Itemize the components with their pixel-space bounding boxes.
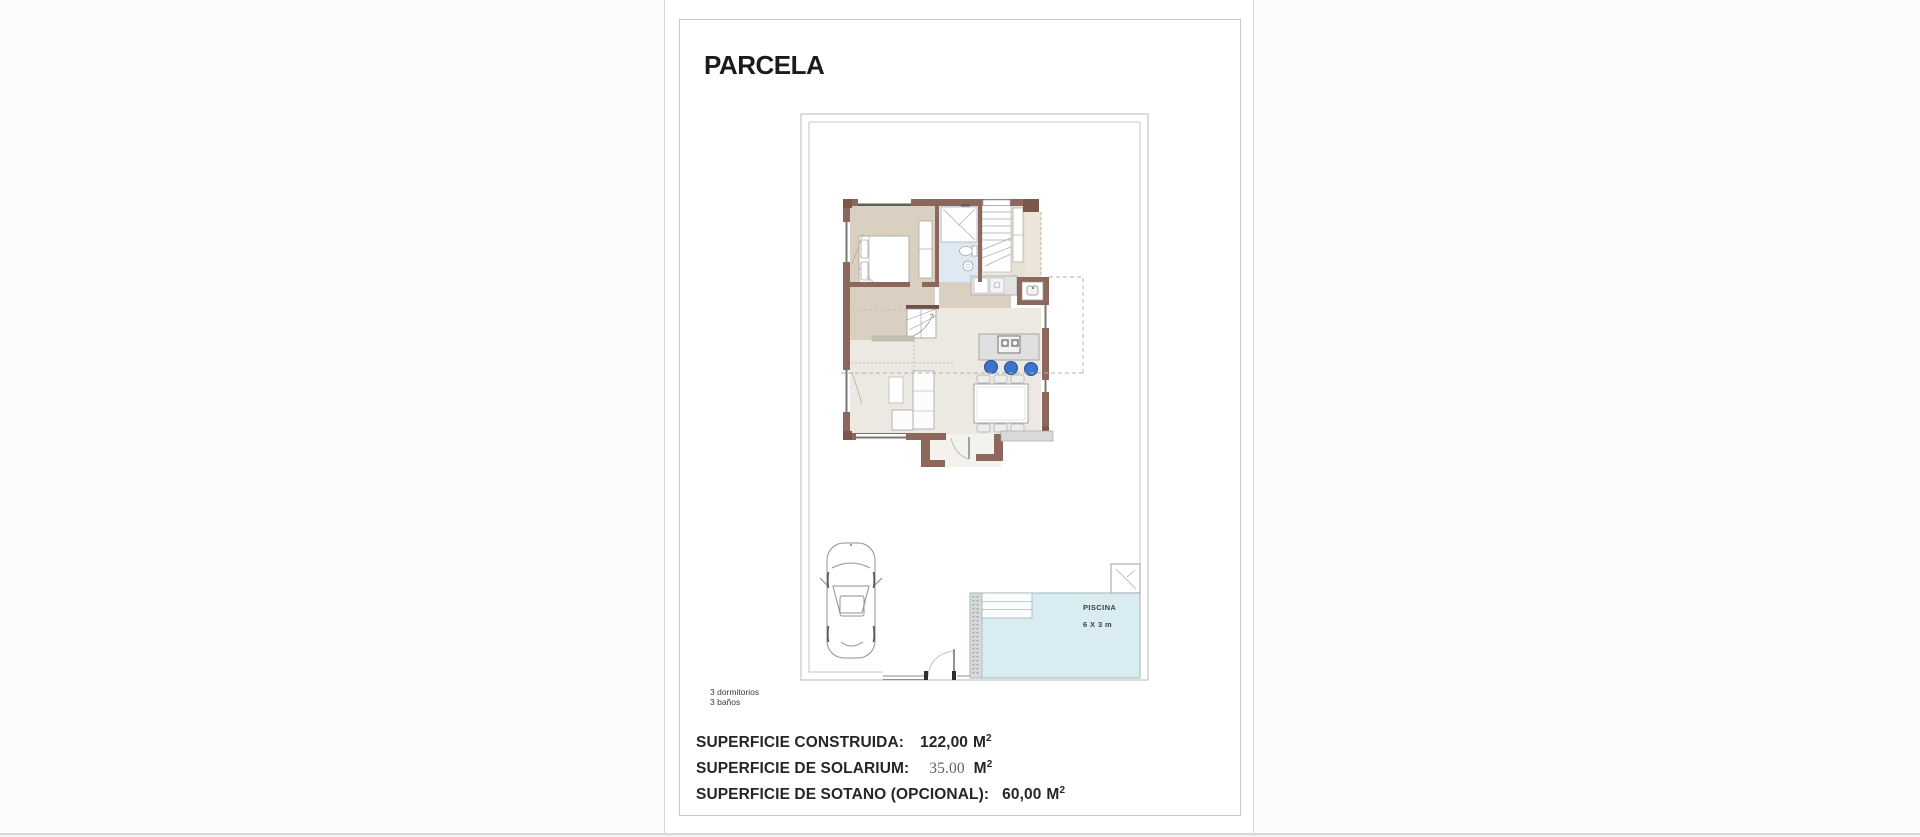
kitchen-counter xyxy=(971,276,1017,295)
staircase-upper xyxy=(982,205,1011,272)
terrace-slab-edge xyxy=(1001,431,1053,441)
pool-steps xyxy=(982,593,1032,618)
bed xyxy=(859,236,909,284)
summary-label: SUPERFICIE DE SOLARIUM: xyxy=(696,760,909,778)
summary-value: 60,00 xyxy=(1002,786,1041,804)
bathroom-sink xyxy=(963,261,973,271)
surface-summary: SUPERFICIE CONSTRUIDA: 122,00 M2 SUPERFI… xyxy=(696,733,1065,811)
summary-label: SUPERFICIE CONSTRUIDA: xyxy=(696,734,904,752)
gate-post xyxy=(952,671,956,680)
summary-label: SUPERFICIE DE SOTANO (OPCIONAL): xyxy=(696,786,989,804)
summary-row-solarium: SUPERFICIE DE SOLARIUM: 35.00 M2 xyxy=(696,759,1065,778)
toilet xyxy=(960,246,978,256)
coffee-table xyxy=(889,377,903,403)
summary-value: 122,00 xyxy=(920,734,968,752)
summary-row-sotano: SUPERFICIE DE SOTANO (OPCIONAL): 60,00 M… xyxy=(696,785,1065,804)
outdoor-shower xyxy=(1111,564,1140,593)
wardrobe xyxy=(919,221,932,278)
plan-notes: 3 dormitorios 3 baños xyxy=(710,687,759,707)
kitchen-island xyxy=(979,334,1039,360)
pool-steps-strip xyxy=(970,593,982,678)
staircase-winder xyxy=(906,305,939,338)
site-plan-drawing: PISCINA 6 X 3 m xyxy=(665,0,1255,837)
summary-value: 35.00 xyxy=(929,760,964,778)
pool-label: PISCINA xyxy=(1083,603,1116,612)
house-floor-plan xyxy=(841,199,1083,467)
summary-unit: M2 xyxy=(1046,785,1065,804)
pool: PISCINA 6 X 3 m xyxy=(970,593,1140,678)
plan-document-page: PARCELA xyxy=(664,0,1254,834)
shower xyxy=(941,207,977,242)
gate-post xyxy=(924,671,928,680)
pool-size-label: 6 X 3 m xyxy=(1083,620,1112,629)
note-bedrooms: 3 dormitorios xyxy=(710,687,759,697)
kitchen-corner-sink xyxy=(1017,277,1049,305)
note-bathrooms: 3 baños xyxy=(710,697,759,707)
side-terrace xyxy=(1025,212,1041,277)
hall-closet xyxy=(1013,208,1023,262)
summary-unit: M2 xyxy=(974,759,993,778)
car-top-view xyxy=(820,543,882,658)
summary-unit: M2 xyxy=(973,733,992,752)
screenshot: PARCELA xyxy=(0,0,1920,837)
summary-row-construida: SUPERFICIE CONSTRUIDA: 122,00 M2 xyxy=(696,733,1065,752)
low-wall xyxy=(872,336,914,341)
